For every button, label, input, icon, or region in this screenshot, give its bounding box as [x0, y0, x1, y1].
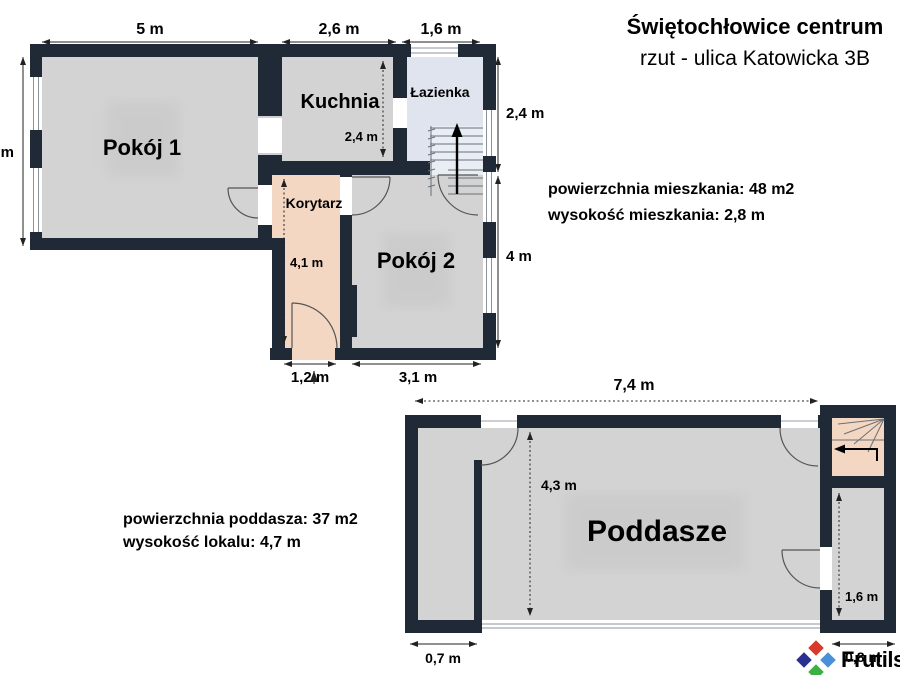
- window: [483, 110, 496, 156]
- apartment-info: powierzchnia mieszkania: 48 m2 wysokość …: [548, 177, 794, 229]
- apartment-height: wysokość mieszkania: 2,8 m: [548, 203, 794, 229]
- dim-room2-height: 4 m: [506, 248, 532, 265]
- dim-attic-depth: 4,3 m: [541, 477, 577, 493]
- window: [483, 172, 496, 222]
- kitchen-label: Kuchnia: [301, 91, 381, 113]
- apartment-area: powierzchnia mieszkania: 48 m2: [548, 177, 794, 203]
- room1-label: Pokój 1: [103, 135, 181, 160]
- attic-area: powierzchnia poddasza: 37 m2: [123, 508, 358, 531]
- dim-bathroom-height: 2,4 m: [506, 105, 544, 122]
- dim-side-room-height: 1,6 m: [845, 589, 878, 604]
- dim-attic-width: 7,4 m: [614, 377, 655, 394]
- attic-label: Poddasze: [587, 515, 727, 548]
- attic-height: wysokość lokalu: 4,7 m: [123, 531, 358, 554]
- dim-kitchen-depth: 2,4 m: [345, 129, 378, 144]
- corridor-label: Korytarz: [286, 195, 343, 211]
- bathroom-label: Łazienka: [410, 84, 469, 100]
- window: [411, 44, 458, 57]
- window: [482, 621, 820, 632]
- floor-plan-lower: 7,4 m 4,3 m 1,6 m 0,7 m 0,8 m Poddasze: [405, 377, 896, 666]
- frutils-logo: Frutils: [796, 640, 900, 675]
- window: [30, 168, 42, 232]
- floor-plan-page: 5 m 2,6 m 1,6 m 4 m 2,4 m 4 m 1,2 m 3,1 …: [0, 0, 900, 675]
- title-location: Świętochłowice centrum: [600, 14, 900, 40]
- dim-bathroom-width: 1,6 m: [421, 21, 462, 38]
- drawing-title: Świętochłowice centrum rzut - ulica Kato…: [600, 14, 900, 71]
- dim-kitchen-width: 2,6 m: [319, 21, 360, 38]
- window: [483, 258, 496, 313]
- floor-plan-upper: 5 m 2,6 m 1,6 m 4 m 2,4 m 4 m 1,2 m 3,1 …: [0, 21, 544, 386]
- dim-closet-width: 0,7 m: [425, 650, 461, 666]
- window: [30, 77, 42, 130]
- title-subtitle: rzut - ulica Katowicka 3B: [600, 47, 900, 71]
- dim-corridor-width: 1,2 m: [291, 369, 329, 386]
- logo-text: Frutils: [841, 647, 900, 672]
- logo-diamonds-icon: [796, 640, 836, 675]
- attic-info: powierzchnia poddasza: 37 m2 wysokość lo…: [123, 508, 358, 554]
- dim-corridor-length: 4,1 m: [290, 255, 323, 270]
- floor-plan-drawing: 5 m 2,6 m 1,6 m 4 m 2,4 m 4 m 1,2 m 3,1 …: [0, 0, 900, 675]
- room2-label: Pokój 2: [377, 248, 455, 273]
- dim-room2-width: 3,1 m: [399, 369, 437, 386]
- dim-room1-width: 5 m: [136, 21, 164, 38]
- dim-left-height: 4 m: [0, 144, 14, 161]
